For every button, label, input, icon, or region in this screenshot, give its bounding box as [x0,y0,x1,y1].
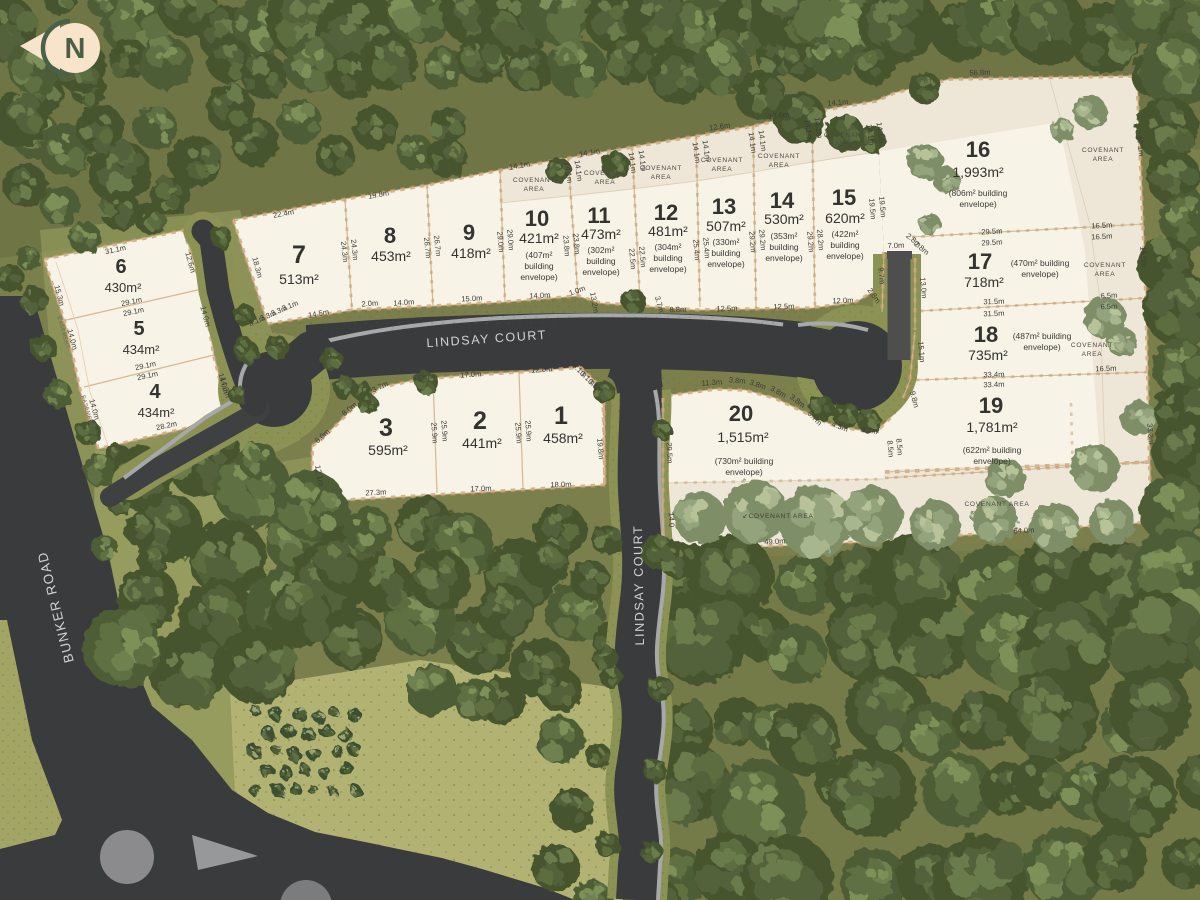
svg-text:AREA: AREA [1095,271,1116,278]
svg-text:17.0m: 17.0m [460,369,482,379]
svg-text:421m²: 421m² [519,230,559,246]
svg-text:envelope): envelope) [649,264,687,274]
svg-text:11: 11 [587,203,610,228]
svg-text:29.2m: 29.2m [747,231,758,253]
svg-text:16: 16 [966,137,990,162]
svg-text:481m²: 481m² [648,223,688,239]
svg-text:14.0m: 14.0m [393,297,415,307]
svg-text:LINDSAY COURT: LINDSAY COURT [631,525,647,646]
svg-text:12: 12 [654,200,678,225]
svg-text:(806m² building: (806m² building [949,188,1008,198]
svg-text:16.5m: 16.5m [1095,364,1116,374]
svg-text:6.5m: 6.5m [1100,302,1117,312]
svg-text:AREA: AREA [651,174,672,181]
svg-text:COVENANT: COVENANT [1082,147,1124,154]
svg-text:14.0m: 14.0m [529,290,551,300]
svg-text:8.5m: 8.5m [885,440,895,458]
svg-text:7: 7 [292,241,306,269]
svg-text:430m²: 430m² [105,280,143,295]
svg-text:28.2m: 28.2m [815,229,826,251]
svg-text:3: 3 [379,414,393,442]
svg-text:COVENANT: COVENANT [758,153,800,160]
svg-text:AREA: AREA [769,162,790,169]
svg-text:AREA: AREA [712,166,733,173]
svg-text:29.5m: 29.5m [664,442,674,464]
svg-text:458m²: 458m² [543,430,583,446]
svg-text:2.0m: 2.0m [361,298,378,308]
svg-text:envelope): envelope) [959,199,997,209]
svg-text:15: 15 [832,185,856,210]
svg-text:envelope): envelope) [1023,342,1061,352]
svg-text:13: 13 [712,194,736,219]
svg-text:13.0m: 13.0m [918,277,929,299]
svg-text:25.9m: 25.9m [429,422,439,444]
svg-text:473m²: 473m² [581,226,621,242]
svg-text:16.5m: 16.5m [1091,220,1113,230]
svg-text:25.9m: 25.9m [513,422,523,444]
svg-text:10: 10 [525,206,549,231]
svg-text:14.0: 14.0 [667,512,677,527]
svg-text:building: building [586,256,616,266]
svg-text:18.0m: 18.0m [550,480,571,490]
svg-text:453m²: 453m² [371,248,411,264]
svg-text:9.7m: 9.7m [876,267,886,285]
svg-text:envelope): envelope) [707,259,745,269]
svg-text:29.2m: 29.2m [805,231,816,253]
svg-text:envelope): envelope) [826,251,864,261]
svg-text:25.4m: 25.4m [701,237,712,259]
svg-text:7.0m: 7.0m [887,241,904,251]
svg-text:16.5m: 16.5m [1091,231,1113,241]
svg-text:31.5m: 31.5m [983,309,1004,319]
svg-text:building: building [524,261,554,271]
svg-text:COVENANT: COVENANT [824,132,866,139]
svg-text:envelope): envelope) [973,456,1011,466]
svg-text:27.3m: 27.3m [365,487,387,497]
svg-text:AREA: AREA [835,141,856,148]
svg-text:envelope): envelope) [1021,269,1059,279]
svg-text:(407m²: (407m² [526,250,553,260]
svg-text:19.5m: 19.5m [877,196,888,218]
svg-text:(422m²: (422m² [832,229,859,239]
svg-text:530m²: 530m² [764,211,804,227]
svg-text:19.5m: 19.5m [867,198,878,220]
svg-text:33.3m: 33.3m [1145,423,1156,445]
svg-text:COVENANT: COVENANT [1084,262,1126,269]
svg-text:5: 5 [133,318,144,340]
svg-text:COVENANT AREA: COVENANT AREA [964,501,1029,508]
svg-text:15.0m: 15.0m [1138,246,1149,268]
svg-text:23.8m: 23.8m [561,235,572,257]
svg-text:(304m²: (304m² [655,242,682,252]
svg-text:building: building [653,253,683,263]
svg-text:8.5m: 8.5m [894,438,904,456]
svg-text:23.8m: 23.8m [571,233,582,255]
svg-text:441m²: 441m² [462,435,502,451]
svg-text:434m²: 434m² [138,405,176,420]
svg-text:4: 4 [149,381,161,403]
svg-text:11.3m: 11.3m [701,377,722,387]
svg-text:AREA: AREA [595,179,616,186]
svg-text:COVENANT: COVENANT [584,170,626,177]
svg-text:(622m² building: (622m² building [963,445,1022,455]
svg-text:22.5m: 22.5m [627,248,638,270]
svg-text:1,993m²: 1,993m² [952,164,1004,180]
svg-text:envelope): envelope) [520,272,558,282]
svg-text:2: 2 [473,407,487,435]
svg-text:12.5m: 12.5m [716,304,737,314]
svg-text:1: 1 [554,402,568,430]
svg-text:↙COVENANT AREA: ↙COVENANT AREA [742,513,813,520]
svg-text:33.4m: 33.4m [983,380,1004,390]
svg-text:735m²: 735m² [968,347,1008,363]
svg-text:19.8m: 19.8m [595,438,606,460]
svg-text:AREA: AREA [524,186,545,193]
svg-text:1,515m²: 1,515m² [717,429,769,445]
svg-text:14.1m: 14.1m [827,97,849,108]
svg-text:12.0m: 12.0m [531,364,553,374]
svg-text:434m²: 434m² [123,342,161,357]
svg-text:22.5m: 22.5m [637,246,648,268]
svg-text:18: 18 [974,322,998,347]
svg-text:595m²: 595m² [368,442,408,458]
svg-text:N: N [65,33,86,65]
svg-text:(470m² building: (470m² building [1011,258,1070,268]
svg-text:(487m² building: (487m² building [1013,331,1072,341]
svg-text:25.4m: 25.4m [691,239,702,261]
svg-text:building: building [711,248,741,258]
svg-text:29.2m: 29.2m [757,229,768,251]
svg-text:25.9m: 25.9m [439,420,449,442]
svg-text:40.1m: 40.1m [1135,135,1146,157]
svg-text:15.0m: 15.0m [461,293,483,303]
svg-text:1,781m²: 1,781m² [966,419,1018,435]
svg-text:COVENANT: COVENANT [1071,342,1113,349]
svg-text:507m²: 507m² [706,218,746,234]
svg-text:49.0m: 49.0m [764,536,786,546]
svg-text:19: 19 [979,393,1003,418]
svg-text:17: 17 [968,249,992,274]
svg-text:(353m²: (353m² [771,231,798,241]
svg-text:6: 6 [115,256,126,278]
svg-text:15.1m: 15.1m [916,341,927,363]
svg-text:AREA: AREA [1093,156,1114,163]
svg-text:AREA: AREA [1082,351,1103,358]
svg-text:418m²: 418m² [451,245,491,261]
svg-text:envelope): envelope) [582,267,620,277]
svg-text:(730m² building: (730m² building [715,456,774,466]
svg-text:8.8m: 8.8m [669,305,686,315]
svg-text:building: building [769,242,799,252]
svg-text:COVENANT: COVENANT [513,177,555,184]
svg-text:29.5m: 29.5m [981,226,1003,236]
svg-text:29.0m: 29.0m [505,229,516,251]
svg-text:(302m²: (302m² [588,245,615,255]
svg-text:64.0m: 64.0m [1013,525,1035,535]
svg-text:29.5m: 29.5m [981,237,1003,247]
svg-text:17.0m: 17.0m [470,484,491,494]
svg-text:31.5m: 31.5m [983,297,1004,307]
svg-text:12.5m: 12.5m [773,302,794,312]
svg-text:8: 8 [384,223,396,248]
svg-text:envelope): envelope) [765,253,803,263]
svg-text:718m²: 718m² [964,274,1004,290]
svg-text:12.0m: 12.0m [832,296,853,306]
svg-text:building: building [830,240,860,250]
svg-text:620m²: 620m² [825,210,865,226]
svg-text:14: 14 [770,188,795,213]
svg-text:envelope): envelope) [725,467,763,477]
svg-text:6.5m: 6.5m [1100,291,1117,301]
svg-text:33.4m: 33.4m [983,370,1004,380]
svg-text:(330m²: (330m² [713,237,740,247]
svg-text:29.0m: 29.0m [495,231,506,253]
svg-text:6.9m: 6.9m [412,372,430,383]
svg-text:9: 9 [463,220,475,245]
svg-text:25.9m: 25.9m [523,420,533,442]
svg-text:513m²: 513m² [279,271,319,287]
svg-text:20: 20 [729,401,753,426]
svg-text:3.8m: 3.8m [728,375,746,385]
svg-text:56.8m: 56.8m [969,68,990,78]
